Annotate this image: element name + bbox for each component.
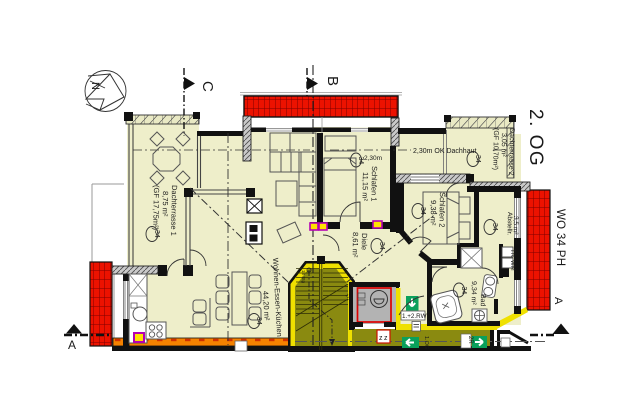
- svg-text:11,15 m²: 11,15 m²: [360, 172, 370, 202]
- svg-text:TR: TR: [509, 249, 515, 258]
- svg-text:34: 34: [491, 223, 498, 231]
- svg-text:8,75 m²: 8,75 m²: [161, 191, 170, 217]
- svg-text:34: 34: [419, 207, 426, 215]
- svg-text:WM: WM: [509, 260, 515, 271]
- svg-text:(GF 10,70m²): (GF 10,70m²): [491, 128, 499, 170]
- svg-text:C: C: [199, 81, 216, 92]
- svg-text:34: 34: [357, 157, 364, 165]
- svg-text:Diele: Diele: [360, 233, 369, 250]
- svg-text:1.+2.RW: 1.+2.RW: [402, 313, 427, 320]
- svg-text:2. OG: 2. OG: [525, 109, 546, 167]
- svg-text:34: 34: [255, 317, 262, 325]
- svg-text:1.OG: 1.OG: [423, 336, 429, 349]
- svg-text:z: z: [379, 335, 383, 342]
- svg-text:2R: 2R: [467, 336, 473, 344]
- svg-text:Schlafen 2: Schlafen 2: [437, 192, 447, 228]
- svg-text:18 Stg: 18 Stg: [301, 270, 306, 284]
- svg-text:Dachterrasse 2: Dachterrasse 2: [507, 128, 515, 176]
- svg-text:34: 34: [378, 242, 385, 250]
- svg-text:N: N: [89, 82, 101, 90]
- svg-text:(GF 17,75m²): (GF 17,75m²): [151, 185, 161, 231]
- svg-text:A: A: [68, 338, 76, 352]
- svg-text:34: 34: [153, 230, 160, 238]
- svg-text:2,30m OK Dachhaut: 2,30m OK Dachhaut: [413, 148, 476, 155]
- svg-text:34: 34: [460, 287, 467, 295]
- svg-text:A: A: [552, 297, 564, 305]
- svg-text:z: z: [384, 335, 388, 342]
- svg-text:Bad: Bad: [479, 294, 486, 307]
- svg-text:2,30m: 2,30m: [364, 155, 382, 162]
- svg-text:8,61 m²: 8,61 m²: [351, 232, 360, 258]
- svg-text:9,34 m²: 9,34 m²: [470, 281, 477, 306]
- svg-text:B: B: [324, 76, 341, 86]
- svg-text:3,5 m²: 3,5 m²: [512, 216, 519, 235]
- svg-text:9,38 m²: 9,38 m²: [429, 200, 438, 226]
- svg-text:34: 34: [474, 155, 481, 163]
- svg-text:WO 34 PH: WO 34 PH: [554, 209, 566, 266]
- svg-text:3,05 m²: 3,05 m²: [500, 133, 507, 158]
